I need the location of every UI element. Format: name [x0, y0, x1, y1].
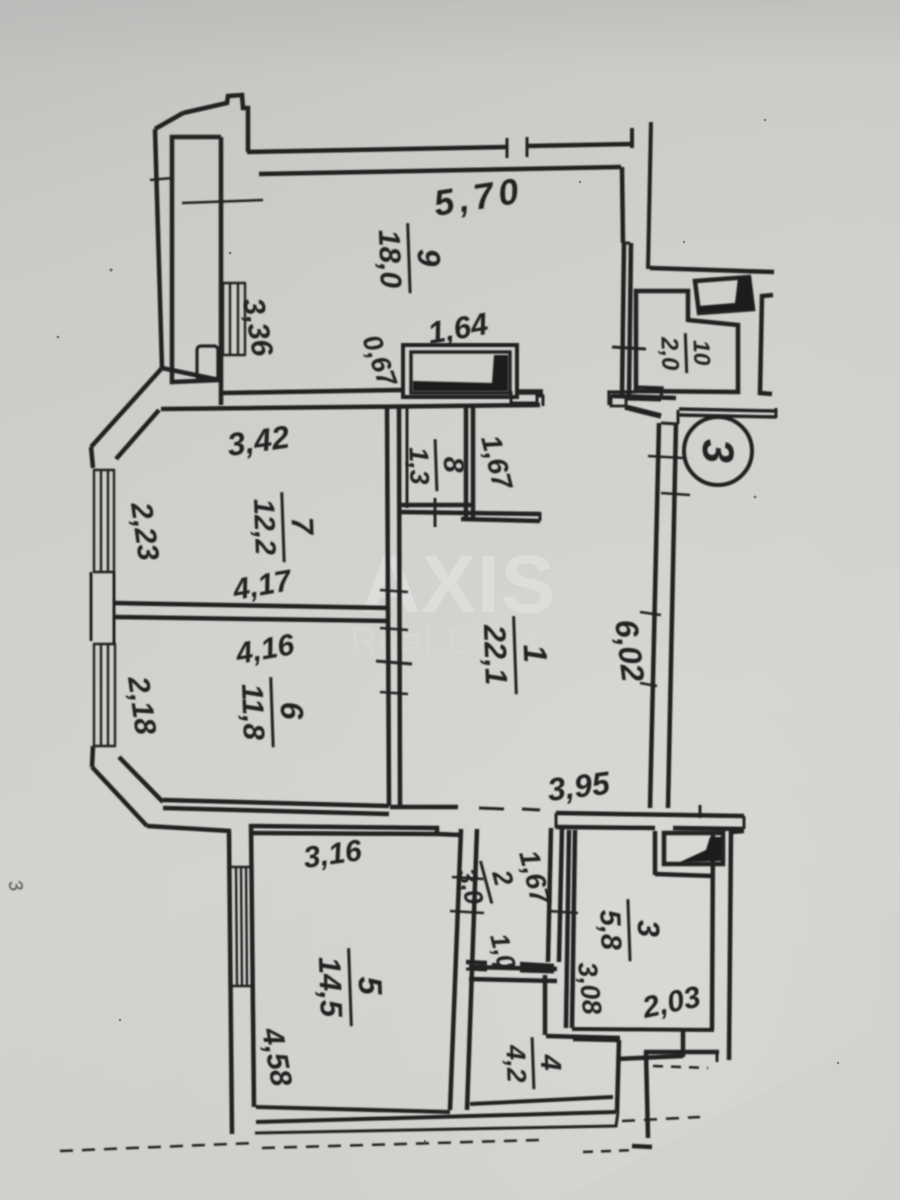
svg-text:6,02: 6,02: [608, 617, 651, 683]
svg-text:6: 6: [274, 701, 311, 720]
svg-text:12,2: 12,2: [247, 498, 281, 556]
svg-text:3: 3: [631, 919, 667, 937]
svg-text:4,2: 4,2: [500, 1043, 531, 1083]
svg-text:3,95: 3,95: [545, 764, 612, 807]
svg-text:5,8: 5,8: [593, 909, 626, 951]
svg-text:AXIS: AXIS: [361, 539, 556, 630]
svg-text:9: 9: [411, 248, 448, 267]
svg-text:18,0: 18,0: [372, 229, 407, 289]
svg-text:14,5: 14,5: [312, 956, 349, 1018]
svg-text:10: 10: [689, 339, 716, 366]
svg-text:1,3: 1,3: [403, 446, 434, 485]
svg-text:4: 4: [534, 1053, 567, 1071]
svg-text:3,08: 3,08: [572, 960, 607, 1015]
svg-text:22,1: 22,1: [477, 623, 514, 686]
svg-text:1: 1: [517, 644, 555, 664]
svg-text:8: 8: [437, 456, 470, 474]
svg-text:3: 3: [693, 438, 743, 464]
svg-text:7: 7: [285, 516, 321, 536]
svg-text:2,0: 2,0: [655, 336, 683, 372]
svg-text:5: 5: [352, 976, 390, 996]
svg-text:11,8: 11,8: [235, 683, 270, 741]
